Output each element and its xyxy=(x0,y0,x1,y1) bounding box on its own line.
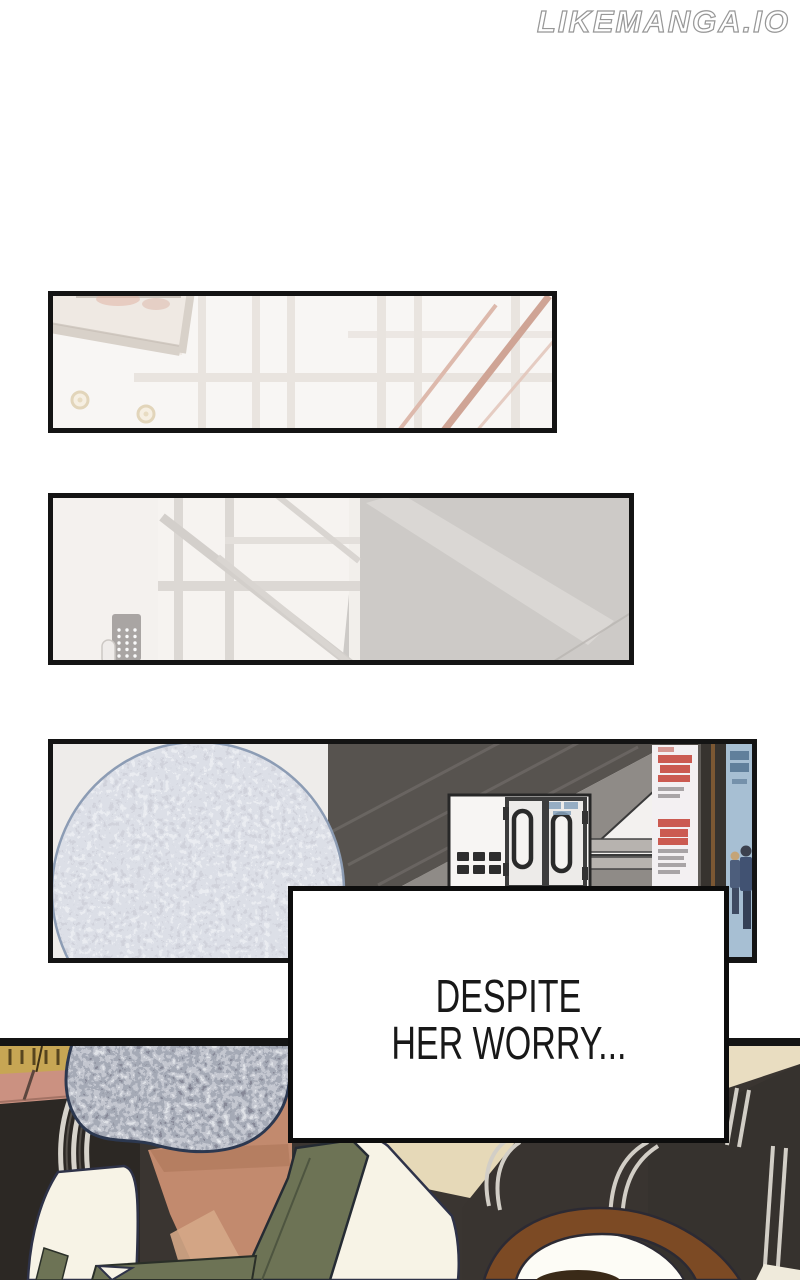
site-watermark: LIKEMANGA.IO xyxy=(537,4,790,40)
poster-blue-text xyxy=(730,751,749,784)
panel-1 xyxy=(48,291,557,433)
gate-machine xyxy=(449,795,590,890)
door-handle xyxy=(514,811,531,867)
caption-line-1: DESPITE xyxy=(436,973,582,1020)
door-handle xyxy=(553,814,570,871)
window-glass xyxy=(158,493,358,665)
panel-2 xyxy=(48,493,634,665)
wall-corner-strip xyxy=(349,493,360,665)
caption-box: DESPITE HER WORRY... xyxy=(288,886,729,1143)
caption-line-2: HER WORRY... xyxy=(391,1020,626,1067)
poster-blue xyxy=(726,743,753,963)
poster-red-text xyxy=(652,745,698,888)
stair-wall xyxy=(342,493,634,665)
